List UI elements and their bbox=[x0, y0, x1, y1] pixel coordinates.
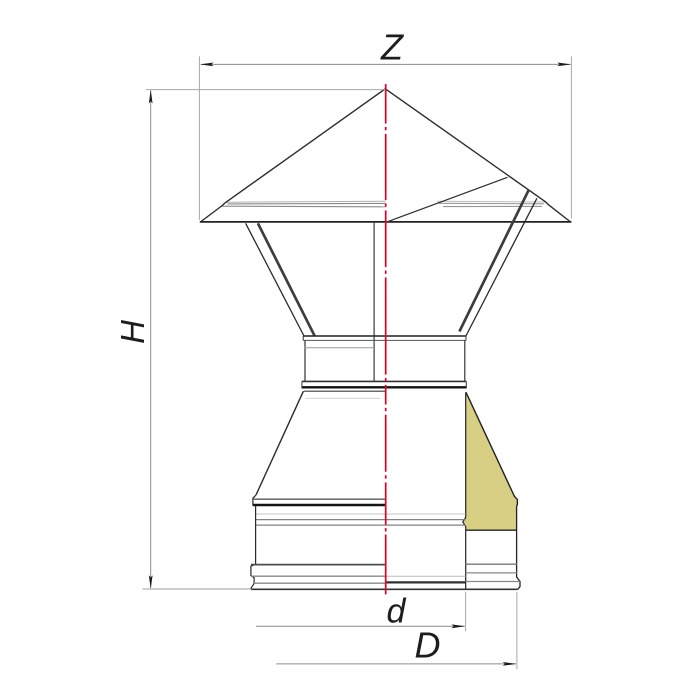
svg-text:H: H bbox=[114, 320, 151, 344]
svg-text:Z: Z bbox=[380, 27, 404, 68]
svg-text:d: d bbox=[387, 593, 407, 631]
svg-text:D: D bbox=[415, 625, 441, 666]
